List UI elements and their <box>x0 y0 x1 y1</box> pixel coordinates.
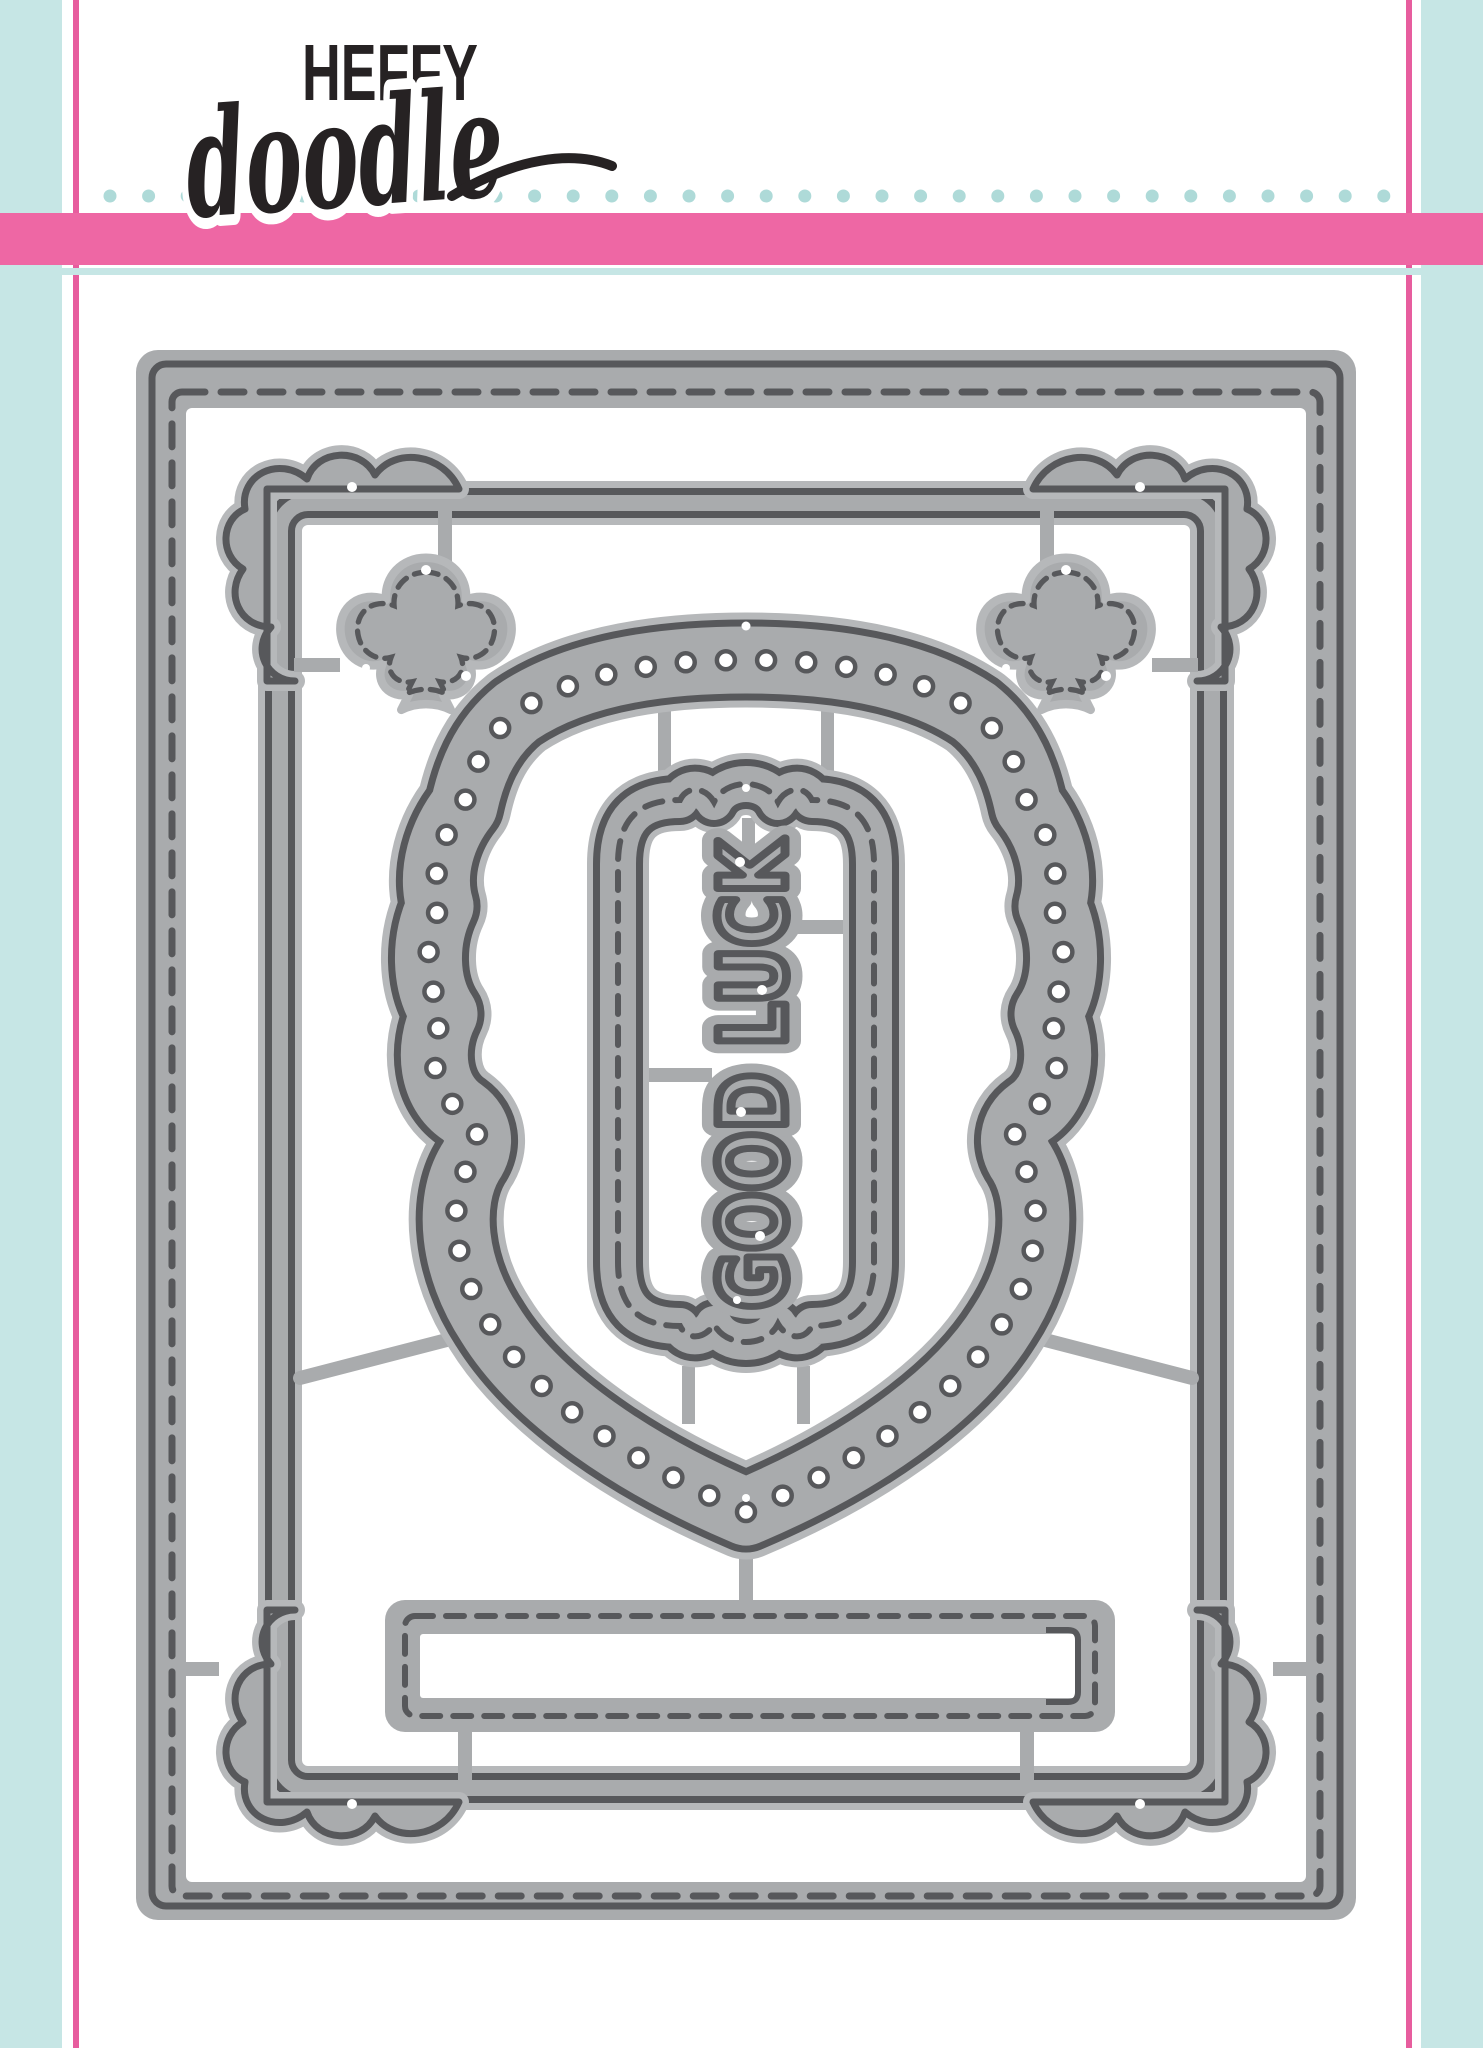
label-hole <box>737 1503 755 1521</box>
teal-dot <box>1030 190 1043 203</box>
teal-dot <box>683 190 696 203</box>
label-hole <box>533 1377 551 1395</box>
label-hole <box>877 666 895 684</box>
teal-dot <box>953 190 966 203</box>
teal-dot <box>1069 190 1082 203</box>
connector-tab <box>185 1662 219 1676</box>
banner-die <box>385 1600 1115 1732</box>
registration-dot <box>742 622 751 631</box>
label-hole <box>450 1242 468 1260</box>
label-hole <box>1018 1163 1036 1181</box>
teal-dot <box>1146 190 1159 203</box>
label-hole <box>1024 1242 1042 1260</box>
label-hole <box>1054 943 1072 961</box>
label-hole <box>559 677 577 695</box>
label-hole <box>952 694 970 712</box>
registration-dot <box>347 1799 357 1809</box>
teal-dot <box>567 190 580 203</box>
label-hole <box>837 658 855 676</box>
label-hole <box>563 1403 581 1421</box>
teal-underline <box>0 268 1483 275</box>
label-hole <box>1045 1019 1063 1037</box>
die-set-graphic: HEFFY doodle doodle <box>0 0 1483 2048</box>
teal-dot <box>104 190 117 203</box>
label-hole <box>468 1125 486 1143</box>
label-hole <box>878 1427 896 1445</box>
label-hole <box>1018 791 1036 809</box>
registration-dot <box>1061 565 1071 575</box>
label-hole <box>428 865 446 883</box>
label-hole <box>845 1449 863 1467</box>
label-hole <box>456 791 474 809</box>
label-hole <box>1046 904 1064 922</box>
teal-dot <box>644 190 657 203</box>
registration-dot <box>421 565 431 575</box>
label-hole <box>424 983 442 1001</box>
registration-dot <box>347 482 357 492</box>
label-hole <box>969 1348 987 1366</box>
label-hole <box>1036 826 1054 844</box>
teal-dot <box>991 190 1004 203</box>
registration-dot <box>461 671 471 681</box>
label-hole <box>429 1019 447 1037</box>
label-hole <box>1027 1202 1045 1220</box>
teal-dot <box>760 190 773 203</box>
label-hole <box>1031 1095 1049 1113</box>
label-hole <box>810 1469 828 1487</box>
registration-dot <box>742 784 750 792</box>
label-hole <box>596 1427 614 1445</box>
label-hole <box>1050 983 1068 1001</box>
label-hole <box>717 651 735 669</box>
connector-tab <box>1273 1662 1307 1676</box>
label-hole <box>456 1163 474 1181</box>
label-hole <box>462 1280 480 1298</box>
teal-dot <box>876 190 889 203</box>
teal-dot <box>605 190 618 203</box>
label-hole <box>428 904 446 922</box>
label-hole <box>941 1377 959 1395</box>
label-hole <box>1006 1125 1024 1143</box>
teal-dot <box>1223 190 1236 203</box>
label-hole <box>522 694 540 712</box>
label-hole <box>774 1487 792 1505</box>
label-hole <box>505 1348 523 1366</box>
registration-dot <box>757 985 767 995</box>
label-hole <box>426 1059 444 1077</box>
label-hole <box>993 1315 1011 1333</box>
label-hole <box>797 653 815 671</box>
teal-dot <box>142 190 155 203</box>
label-hole <box>438 826 456 844</box>
banner-interior <box>420 1634 1078 1698</box>
label-hole <box>677 653 695 671</box>
registration-dot <box>742 1494 750 1502</box>
label-hole <box>1048 1059 1066 1077</box>
label-hole <box>447 1202 465 1220</box>
label-hole <box>420 943 438 961</box>
registration-dot <box>733 1296 741 1304</box>
label-hole <box>911 1403 929 1421</box>
brand-word-doodle: doodle <box>180 56 509 252</box>
die-set: GOOD LUCK GOOD LUCK <box>136 350 1356 1920</box>
label-hole <box>443 1095 461 1113</box>
teal-dot <box>1107 190 1120 203</box>
teal-dot <box>914 190 927 203</box>
good-luck-word-die: GOOD LUCK GOOD LUCK <box>700 837 807 1310</box>
sentiment-text: GOOD LUCK <box>700 837 807 1310</box>
label-hole <box>915 677 933 695</box>
label-hole <box>664 1469 682 1487</box>
label-hole <box>637 658 655 676</box>
registration-dot <box>1002 664 1010 672</box>
teal-dot <box>721 190 734 203</box>
label-hole <box>481 1315 499 1333</box>
teal-dot <box>1262 190 1275 203</box>
registration-dot <box>735 857 745 867</box>
label-hole <box>1046 865 1064 883</box>
label-hole <box>629 1449 647 1467</box>
label-hole <box>983 719 1001 737</box>
teal-dot <box>1184 190 1197 203</box>
right-teal-stripe <box>1421 0 1483 2048</box>
registration-dot <box>1135 1799 1145 1809</box>
label-hole <box>469 753 487 771</box>
label-hole <box>1005 753 1023 771</box>
registration-dot <box>1135 482 1145 492</box>
label-hole <box>757 651 775 669</box>
registration-dot <box>736 1107 746 1117</box>
label-hole <box>700 1487 718 1505</box>
right-pink-line <box>1406 0 1412 2048</box>
product-image: HEFFY doodle doodle <box>0 0 1483 2048</box>
teal-dot <box>1377 190 1390 203</box>
registration-dot <box>362 664 370 672</box>
teal-dot <box>1339 190 1352 203</box>
registration-dot <box>1101 671 1111 681</box>
label-hole <box>597 666 615 684</box>
left-pink-line <box>73 0 79 2048</box>
teal-dot <box>528 190 541 203</box>
left-teal-stripe <box>0 0 62 2048</box>
registration-dot <box>755 1231 765 1241</box>
teal-dot <box>1300 190 1313 203</box>
label-hole <box>491 719 509 737</box>
teal-dot <box>837 190 850 203</box>
teal-dot <box>798 190 811 203</box>
label-hole <box>1012 1280 1030 1298</box>
